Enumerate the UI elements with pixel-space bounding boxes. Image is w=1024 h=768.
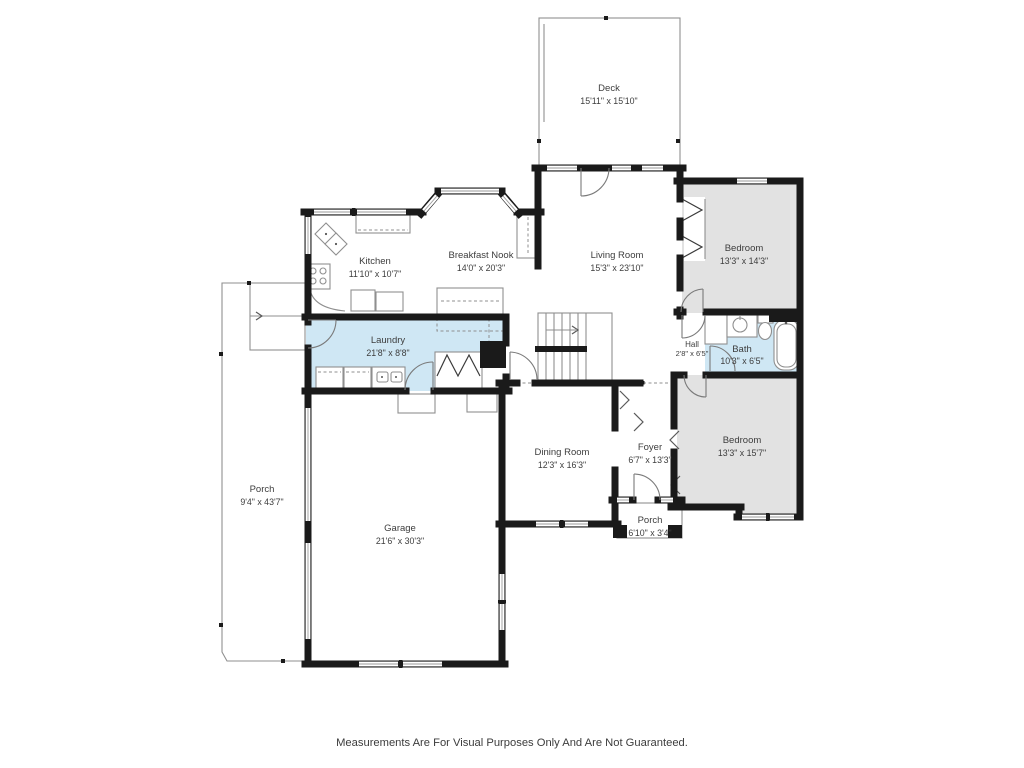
bedroom-lower-area (677, 375, 800, 517)
room-dims-living-room: 15'3" x 23'10" (590, 263, 643, 273)
room-dims-deck: 15'11" x 15'10" (580, 96, 637, 106)
room-label-kitchen: Kitchen (359, 256, 391, 267)
room-dims-kitchen: 11'10" x 10'7" (349, 269, 402, 279)
room-dims-breakfast-nook: 14'0" x 20'3" (457, 263, 505, 273)
room-label-porch-front: Porch (638, 515, 663, 526)
room-dims-garage: 21'6" x 30'3" (376, 536, 424, 546)
room-label-garage: Garage (384, 523, 416, 534)
side-porch-outline (222, 283, 305, 661)
washer-icon (316, 367, 343, 390)
room-label-bath: Bath (732, 344, 752, 355)
room-label-bedroom-lower: Bedroom (723, 435, 762, 446)
room-label-laundry: Laundry (371, 335, 406, 346)
nook-cabinet (437, 288, 503, 314)
room-dims-bedroom-lower: 13'3" x 15'7" (718, 448, 766, 458)
room-dims-bath: 10'3" x 6'5" (720, 356, 763, 366)
room-dims-laundry: 21'8" x 8'8" (366, 348, 409, 358)
door-front-entry (634, 474, 660, 500)
door-hall-inner (682, 315, 705, 338)
dryer-icon (344, 367, 371, 390)
room-dims-hall: 2'8" x 6'5" (676, 349, 709, 358)
garage-steps (398, 393, 497, 413)
porch-post (613, 525, 627, 538)
disclaimer-text: Measurements Are For Visual Purposes Onl… (336, 737, 688, 749)
door-hall-stairs (510, 352, 537, 380)
room-dims-porch-front: 6'10" x 3'4" (628, 528, 671, 538)
room-dims-foyer: 6'7" x 13'3" (628, 455, 671, 465)
floor-plan-page: Deck 15'11" x 15'10" Kitchen 11'10" x 10… (0, 0, 1024, 768)
room-label-breakfast-nook: Breakfast Nook (449, 250, 514, 261)
door-deck-living (581, 168, 609, 196)
room-label-living-room: Living Room (591, 250, 644, 261)
room-label-porch-side: Porch (250, 484, 275, 495)
bathtub-icon (774, 320, 799, 370)
bath-sink-icon (727, 315, 757, 337)
room-label-bedroom-upper: Bedroom (725, 243, 764, 254)
kitchen-island (315, 223, 347, 255)
laundry-closet (435, 352, 482, 390)
opening-markers (517, 383, 680, 494)
room-dims-porch-side: 9'4" x 43'7" (240, 497, 283, 507)
linen-closet (705, 314, 727, 344)
room-label-foyer: Foyer (638, 442, 662, 453)
room-label-deck: Deck (598, 83, 620, 94)
room-label-hall: Hall (685, 340, 699, 349)
laundry-sink-icon (372, 367, 405, 390)
floor-plan-svg: Deck 15'11" x 15'10" Kitchen 11'10" x 10… (0, 0, 1024, 768)
room-dims-bedroom-upper: 13'3" x 14'3" (720, 256, 768, 266)
room-label-dining-room: Dining Room (535, 447, 590, 458)
room-dims-dining-room: 12'3" x 16'3" (538, 460, 586, 470)
